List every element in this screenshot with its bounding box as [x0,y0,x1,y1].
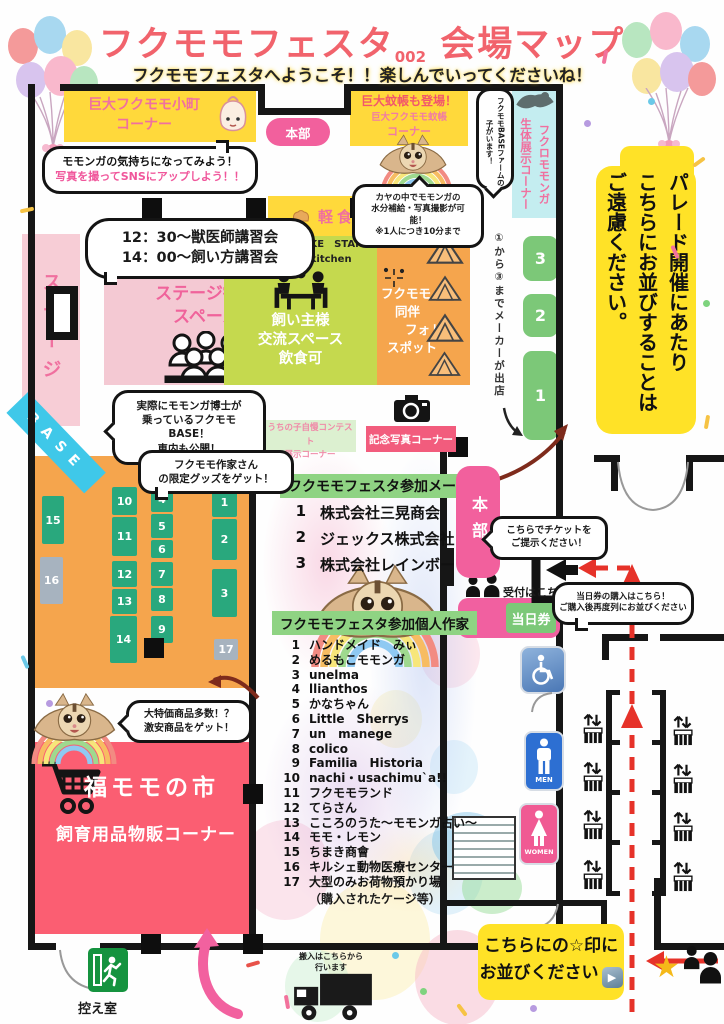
artist-item: 8colico [276,742,477,757]
photo-memorial-corner: 記念写真コーナー [366,426,456,452]
artist-item: 11フクモモランド [276,786,477,801]
artist-item: 17大型のみお荷物預かり場 [276,875,477,890]
kaya-rule-bubble: カヤの中でモモンガの 水分補給・写真撮影が可能！ ※1人につき10分まで [352,184,484,248]
title-tail: 会場マップ [440,25,625,65]
day-ticket-bubble: 当日券の購入はこちら！ ご購入後再度列にお並びください [552,582,694,625]
artist-item: 14モモ・レモン [276,830,477,845]
artist-item: 9Familia Historia [276,756,477,771]
title-main: フクモモフェスタ [99,25,395,65]
artist-item: 10nachi・usachimu`a!! [276,771,477,786]
confetti [46,700,53,707]
artist-item: 15ちまき商會 [276,845,477,860]
sns-bubble: モモンガの気持ちになってみよう！ 写真を撮ってSNSにアップしよう！！ [42,146,258,194]
play-icon: ▶ [602,967,623,988]
bubble-tail [155,487,168,500]
hq-top-badge: 本部 [266,118,330,146]
confetti [530,1005,537,1012]
artist-item: 2めるもこモモンガ [276,653,477,668]
ticket-present-bubble: こちらでチケットを ご提示ください！ [490,516,608,560]
exit-runner-icon [93,953,123,987]
welcome-message: フクモモフェスタへようこそ！！楽しんでいってくださいね！ [0,62,724,86]
maker-list: 1株式会社三晃商会2ジェックス株式会社3株式会社レインボー [288,502,455,575]
confetti [584,120,591,127]
artist-item: 3unelma [276,668,477,683]
maker-item: 1株式会社三晃商会 [288,502,455,523]
truck-icon [292,972,374,1022]
base-farm-bubble: フクモモBASEファームの子がいます！ [476,88,514,190]
artist-item: 7un manege [276,727,477,742]
carry-in-note: 搬入はこちらから行います [286,951,376,973]
lecture-bubble: 12：30～獣医師講習会 14：00～飼い方講習会 [85,218,315,279]
artist-list: 1ハンドメイド みぃ2めるもこモモンガ3unelma4llianthos5かなち… [276,638,477,890]
maker-item: 3株式会社レインボー [288,554,455,575]
exit-sign [88,948,128,992]
venue-map-poster: フクモモフェスタ002 会場マップ フクモモフェスタへようこそ！！楽しんでいって… [0,0,724,1024]
artist-item: 5かなちゃん [276,697,477,712]
confetti [420,988,427,995]
goods-bubble: フクモモ作家さん の限定グッズをゲット！ [138,450,294,494]
artist-item: 6Little Sherrys [276,712,477,727]
maker-item: 2ジェックス株式会社 [288,528,455,549]
artist-item: 1ハンドメイド みぃ [276,638,477,653]
artist-item: 16キルシェ動物医療センター [276,860,477,875]
confetti [392,952,399,959]
artist-item: 4llianthos [276,682,477,697]
confetti [648,98,655,105]
artist-list-header: フクモモフェスタ参加個人作家 [272,611,477,635]
page-title: フクモモフェスタ002 会場マップ [0,16,724,67]
lineup-star: ★ [653,950,680,985]
confetti [703,300,710,307]
bubble-tail [216,140,229,153]
artist-item: 13こころのうた～モモンガ占い～ [276,816,477,831]
lineup-instruction: こちらにの☆印に お並びください▶ [478,924,624,1000]
artist-item: 12てらさん [276,801,477,816]
contest-display-corner: うちの子自慢コンテスト展示コーナー [264,420,356,452]
bubble-tail [104,272,117,285]
day-ticket-badge: 当日券 [506,603,556,633]
camera-icon [393,394,431,424]
parade-notice: パレード開催にあたり こちらにお並びすることは ご遠慮ください。 [596,166,696,434]
bargain-bubble: 大特価商品多数！？ 激安商品をゲット！ [126,700,252,743]
bubble-tail [575,618,588,631]
artist-list-note: （購入されたケージ等） [309,890,441,907]
waiting-room-label: 控え室 [78,998,117,1017]
